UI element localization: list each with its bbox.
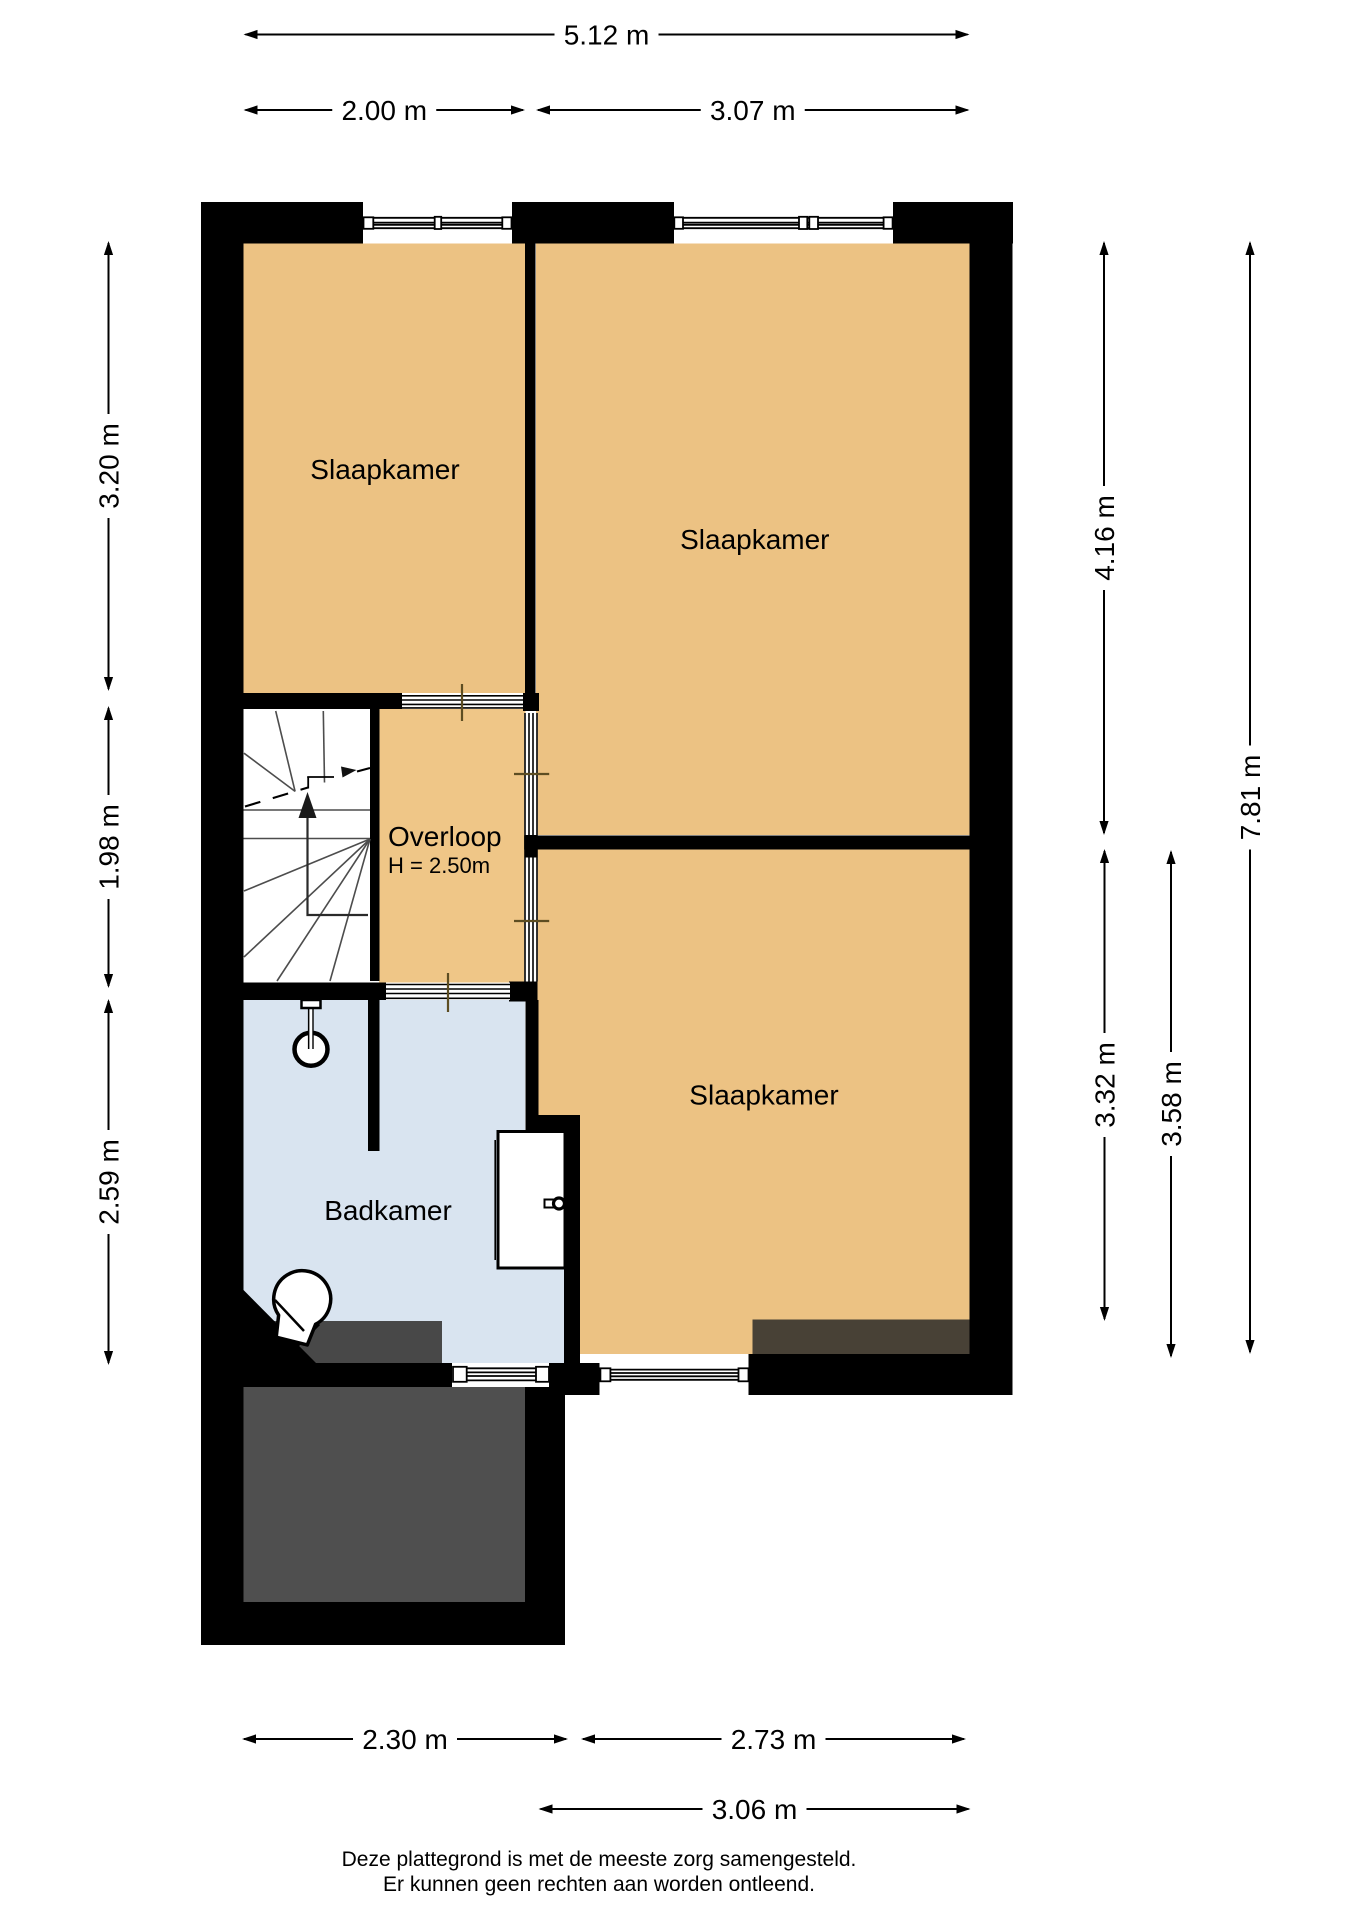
svg-text:5.12 m: 5.12 m xyxy=(564,20,650,51)
svg-text:Er kunnen geen rechten aan wor: Er kunnen geen rechten aan worden ontlee… xyxy=(383,1873,815,1896)
svg-text:3.32 m: 3.32 m xyxy=(1090,1042,1121,1128)
svg-text:7.81 m: 7.81 m xyxy=(1235,755,1266,841)
svg-text:4.16 m: 4.16 m xyxy=(1089,495,1120,581)
svg-text:3.58 m: 3.58 m xyxy=(1156,1061,1187,1147)
svg-text:1.98 m: 1.98 m xyxy=(94,804,125,890)
svg-text:3.06 m: 3.06 m xyxy=(712,1794,798,1825)
svg-text:Slaapkamer: Slaapkamer xyxy=(310,454,459,485)
svg-text:2.30 m: 2.30 m xyxy=(362,1724,448,1755)
svg-text:Slaapkamer: Slaapkamer xyxy=(680,524,829,555)
svg-text:Slaapkamer: Slaapkamer xyxy=(689,1080,838,1111)
svg-text:Deze plattegrond is met de mee: Deze plattegrond is met de meeste zorg s… xyxy=(342,1848,857,1871)
svg-text:2.73 m: 2.73 m xyxy=(731,1724,817,1755)
svg-text:2.59 m: 2.59 m xyxy=(94,1139,125,1225)
svg-text:H = 2.50m: H = 2.50m xyxy=(388,853,490,878)
svg-text:Overloop: Overloop xyxy=(388,821,502,852)
svg-text:2.00 m: 2.00 m xyxy=(341,95,427,126)
svg-text:Badkamer: Badkamer xyxy=(324,1195,452,1226)
svg-text:3.20 m: 3.20 m xyxy=(94,423,125,509)
svg-text:3.07 m: 3.07 m xyxy=(710,95,796,126)
